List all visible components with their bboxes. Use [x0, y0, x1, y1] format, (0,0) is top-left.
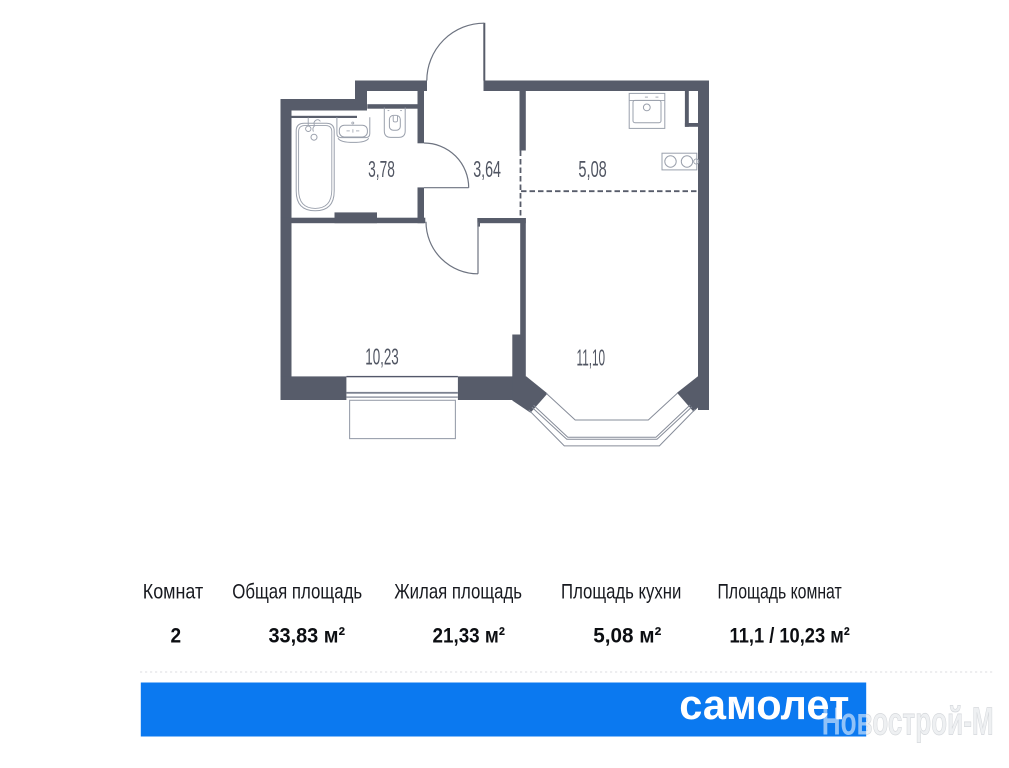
svg-text:10,23: 10,23	[365, 344, 399, 370]
svg-text:2: 2	[171, 623, 182, 647]
svg-text:Площадь комнат: Площадь комнат	[717, 581, 842, 604]
svg-text:Общая площадь: Общая площадь	[232, 581, 362, 604]
svg-text:5,08: 5,08	[578, 156, 606, 182]
svg-text:Площадь кухни: Площадь кухни	[561, 581, 681, 604]
svg-text:3,64: 3,64	[473, 156, 501, 182]
svg-text:Жилая площадь: Жилая площадь	[394, 581, 522, 604]
svg-text:11,10: 11,10	[577, 345, 606, 371]
svg-text:3,78: 3,78	[368, 156, 395, 182]
svg-text:21,33 м²: 21,33 м²	[433, 623, 506, 647]
svg-text:11,1 / 10,23 м²: 11,1 / 10,23 м²	[730, 623, 850, 647]
svg-text:Комнат: Комнат	[143, 581, 204, 604]
svg-text:33,83 м²: 33,83 м²	[268, 623, 345, 647]
svg-text:5,08 м²: 5,08 м²	[593, 623, 661, 647]
